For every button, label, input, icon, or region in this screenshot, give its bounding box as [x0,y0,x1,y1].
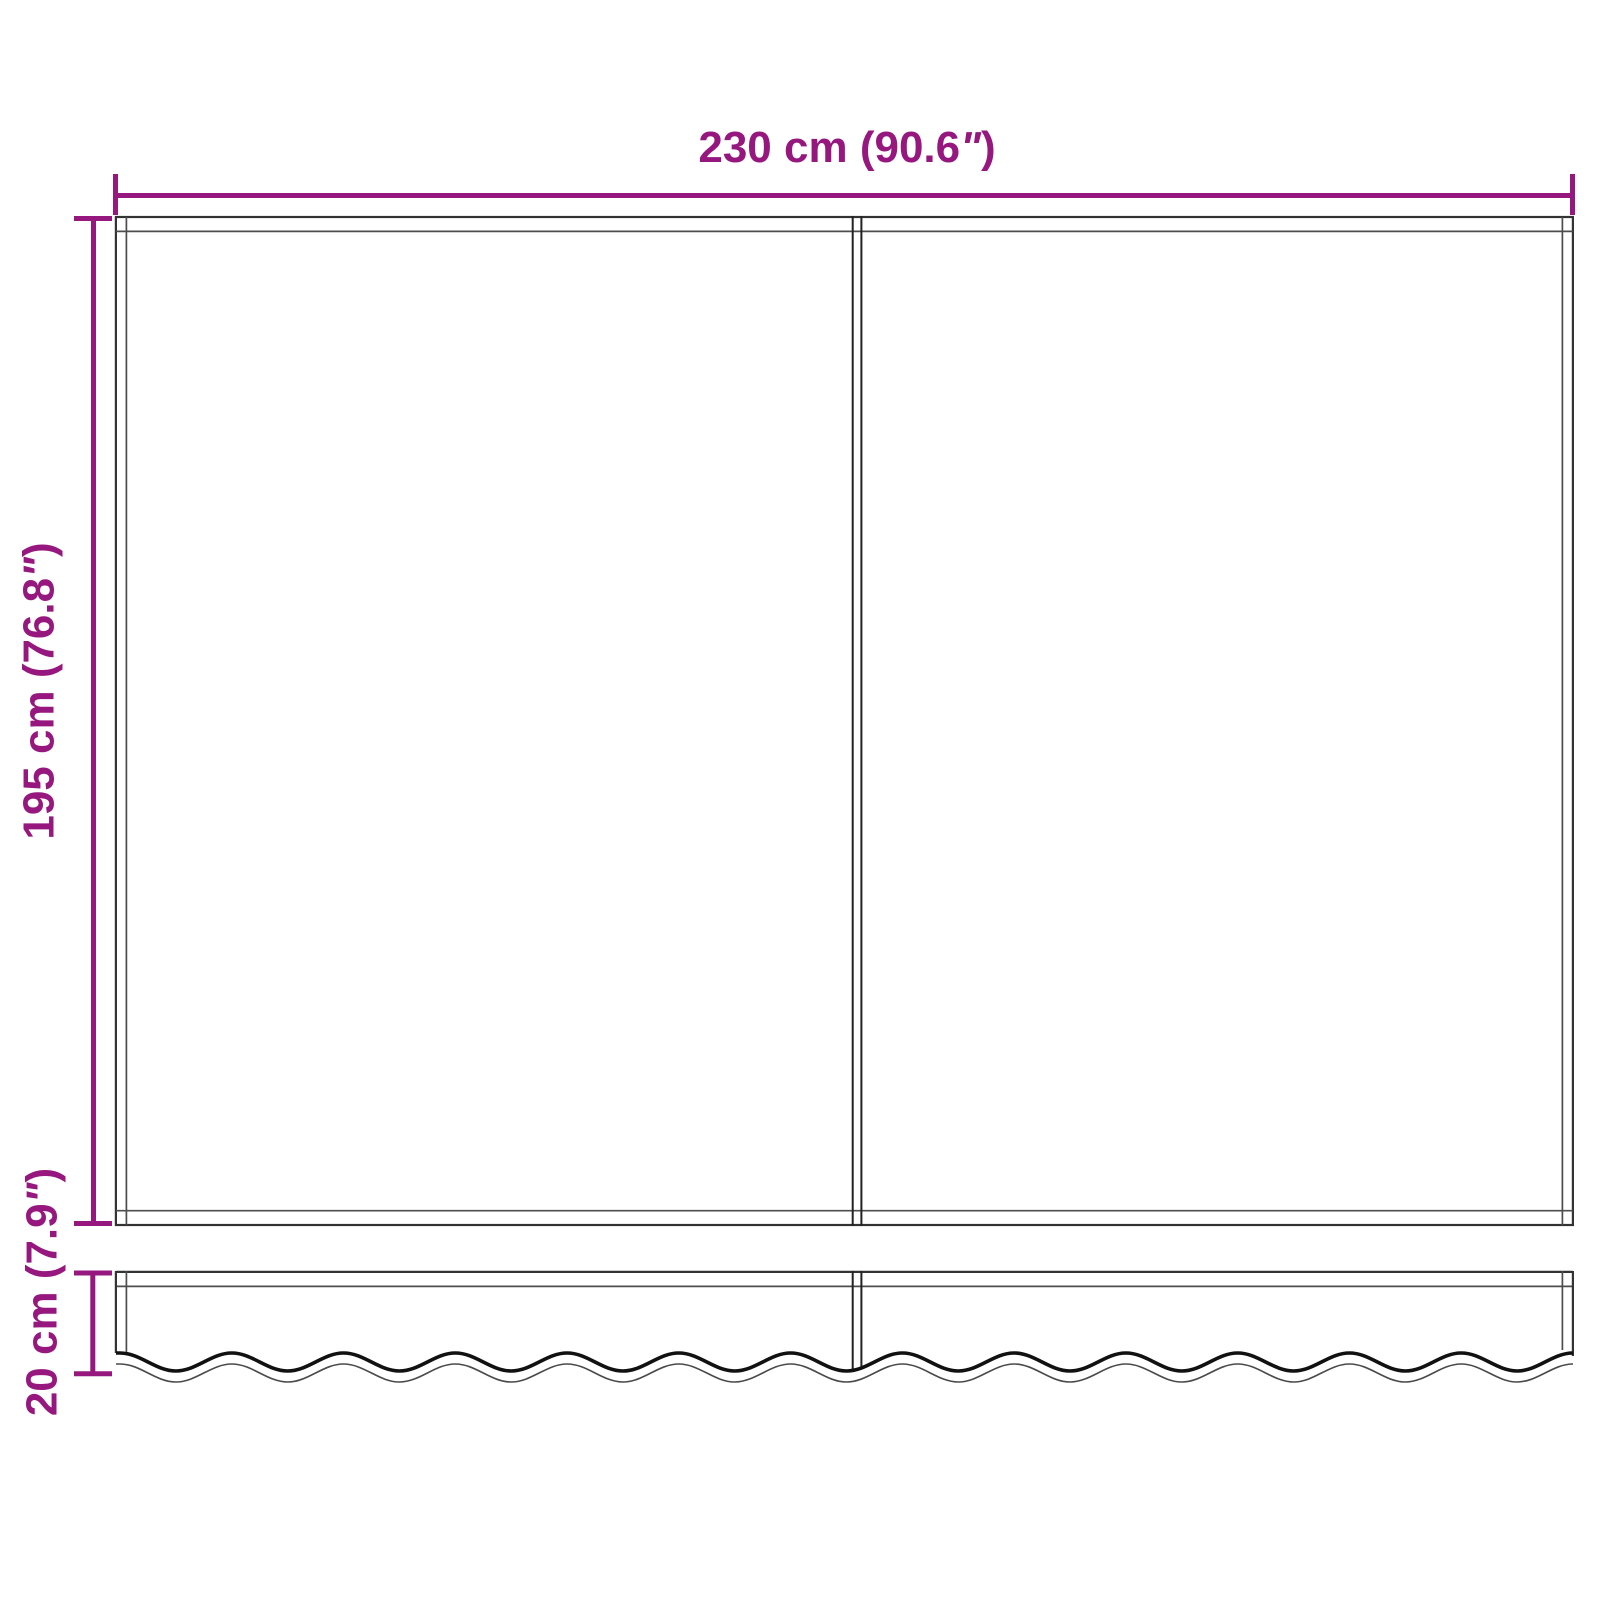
svg-text:20 cm (7.9"): 20 cm (7.9") [18,1168,67,1416]
svg-text:195 cm (76.8"): 195 cm (76.8") [15,542,64,839]
svg-text:230 cm (90.6"): 230 cm (90.6") [698,123,995,172]
